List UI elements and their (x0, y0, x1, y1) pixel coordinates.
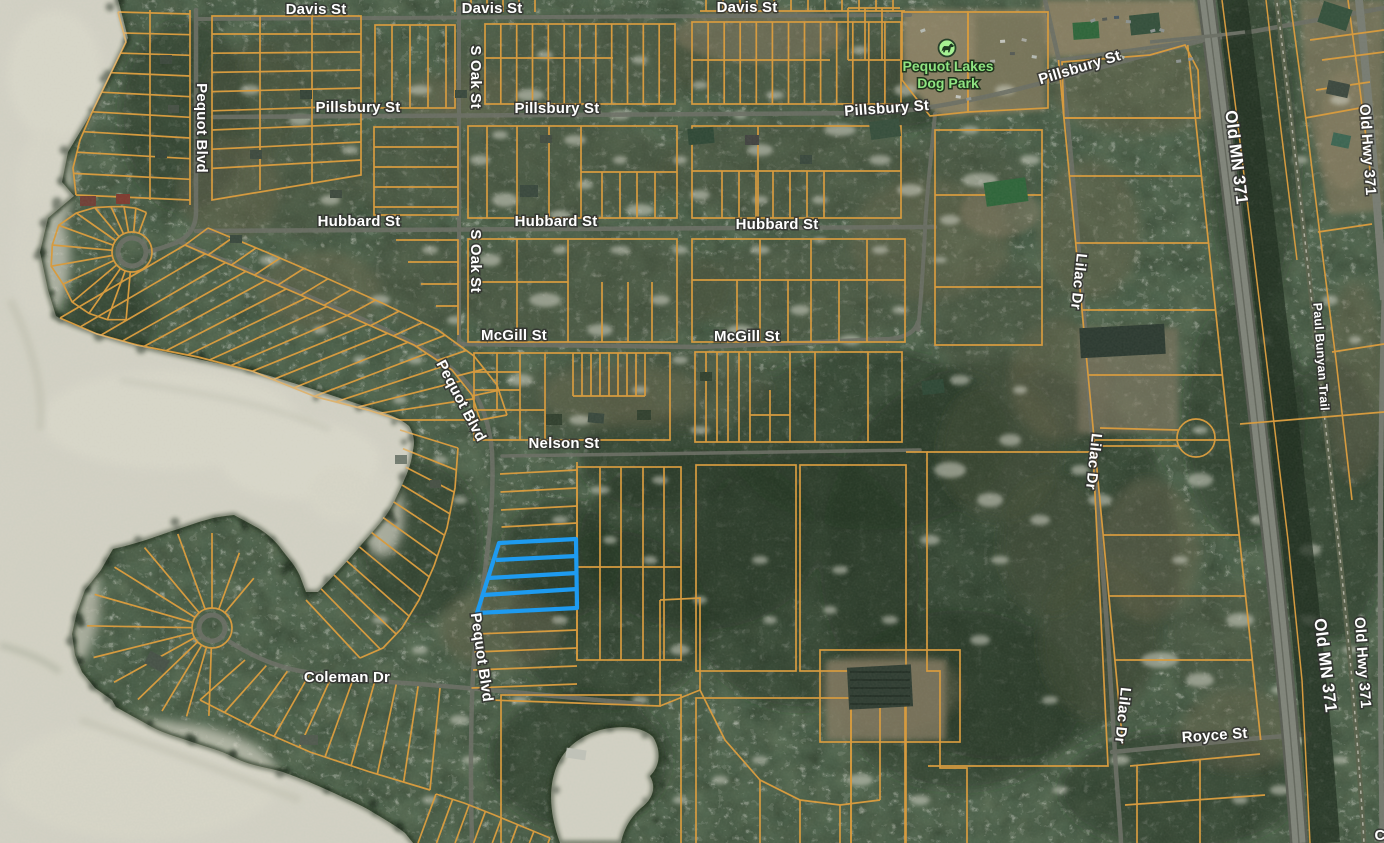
svg-text:Davis St: Davis St (462, 0, 523, 17)
svg-text:McGill St: McGill St (714, 328, 780, 345)
svg-text:McGill St: McGill St (481, 327, 547, 344)
svg-text:Coleman Dr: Coleman Dr (304, 669, 390, 686)
svg-text:Dog Park: Dog Park (917, 75, 979, 91)
svg-text:C: C (1374, 827, 1384, 843)
svg-text:Pequot Blvd: Pequot Blvd (193, 83, 210, 173)
svg-text:Davis St: Davis St (286, 1, 347, 18)
svg-text:Hubbard St: Hubbard St (318, 213, 401, 230)
svg-text:Pillsbury St: Pillsbury St (316, 99, 401, 116)
svg-text:Hubbard St: Hubbard St (736, 216, 819, 233)
svg-text:Hubbard St: Hubbard St (515, 213, 598, 230)
svg-text:Pillsbury St: Pillsbury St (515, 100, 600, 117)
svg-text:S Oak St: S Oak St (467, 45, 484, 108)
svg-text:Davis St: Davis St (717, 0, 778, 16)
svg-text:S Oak St: S Oak St (467, 229, 484, 292)
svg-text:Pequot Lakes: Pequot Lakes (902, 58, 993, 74)
svg-text:Nelson St: Nelson St (529, 435, 600, 452)
